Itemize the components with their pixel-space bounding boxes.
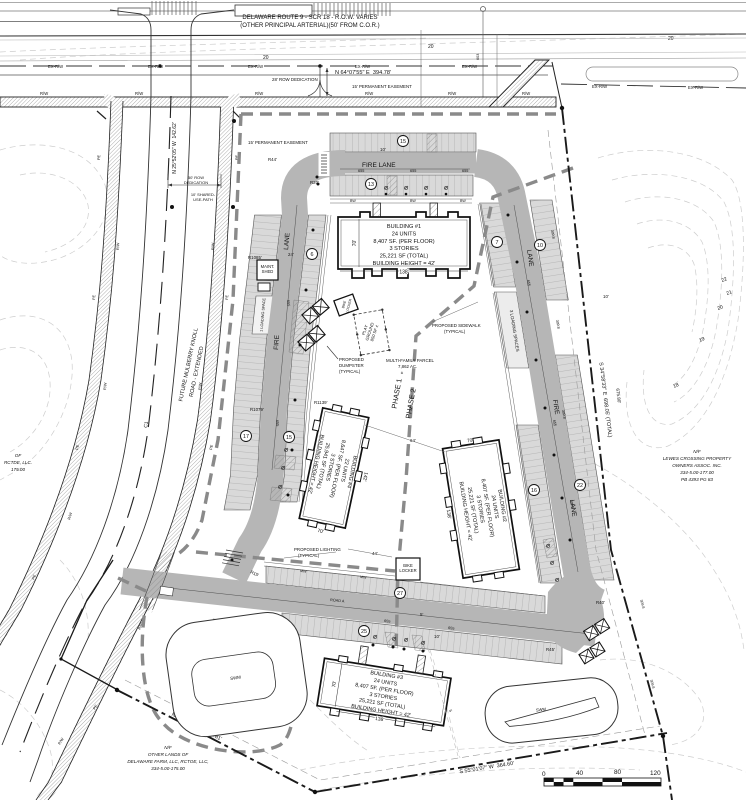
svg-text:8,407 SF. (PER FLOOR): 8,407 SF. (PER FLOOR) [373, 239, 434, 245]
svg-text:R/W: R/W [255, 91, 263, 96]
svg-text:BW: BW [410, 199, 416, 203]
svg-text:R1085': R1085' [248, 255, 262, 260]
svg-text:DEDICATION: DEDICATION [184, 180, 208, 185]
svg-text:MULTI-FAMILY PARCEL: MULTI-FAMILY PARCEL [386, 358, 435, 363]
svg-text:24 UNITS: 24 UNITS [392, 231, 417, 237]
svg-text:R/W: R/W [40, 91, 48, 96]
svg-text:655: 655 [275, 420, 279, 427]
svg-text:LOCKER: LOCKER [399, 568, 416, 573]
svg-text:PROPOSED: PROPOSED [339, 357, 364, 362]
svg-text:655: 655 [358, 169, 364, 173]
svg-text:5': 5' [420, 612, 423, 617]
svg-text:10': 10' [603, 294, 609, 299]
svg-text:R/W: R/W [448, 91, 456, 96]
svg-text:PE: PE [225, 294, 229, 300]
svg-text:N 64°07'55" E 394.78': N 64°07'55" E 394.78' [335, 70, 391, 76]
svg-text:R/W: R/W [522, 91, 530, 96]
svg-text:120: 120 [650, 770, 661, 777]
svg-text:3 STORIES: 3 STORIES [389, 246, 418, 252]
svg-text:22: 22 [577, 483, 583, 489]
svg-text:PHASE 1: PHASE 1 [389, 378, 403, 409]
svg-text:25: 25 [361, 629, 367, 635]
svg-text:138': 138' [375, 716, 385, 723]
svg-text:PROPOSED LIGHTING: PROPOSED LIGHTING [294, 547, 341, 552]
svg-text:15: 15 [286, 435, 292, 441]
svg-text:R/W: R/W [116, 242, 120, 250]
svg-text:603: 603 [476, 54, 480, 60]
svg-text:DELAWARE ROUTE 9 - SCR 18 - R.: DELAWARE ROUTE 9 - SCR 18 - R.O.W. VARIE… [242, 15, 377, 21]
svg-text:N 25°52'05" W 142.62': N 25°52'05" W 142.62' [172, 122, 178, 174]
svg-text:S 34°58'33" E 698.05' (TOTAL): S 34°58'33" E 698.05' (TOTAL) [597, 362, 612, 438]
svg-text:27: 27 [397, 591, 403, 597]
svg-text:20: 20 [428, 44, 434, 50]
svg-text:±: ± [401, 370, 404, 375]
svg-text:R40': R40' [596, 600, 605, 605]
svg-text:SHED: SHED [262, 269, 274, 274]
svg-text:RCTDE, LLC.: RCTDE, LLC. [4, 460, 32, 465]
svg-text:FIRE: FIRE [273, 334, 281, 350]
svg-text:R/W: R/W [57, 737, 65, 746]
svg-text:10': 10' [380, 147, 386, 152]
svg-text:0: 0 [542, 771, 546, 778]
svg-text:OWNERS ASSOC. INC.: OWNERS ASSOC. INC. [672, 463, 722, 468]
svg-text:R1079': R1079' [250, 407, 264, 412]
svg-text:25,221 SF (TOTAL): 25,221 SF (TOTAL) [380, 254, 429, 260]
svg-text:MW: MW [300, 569, 307, 574]
svg-text:PE: PE [92, 294, 96, 300]
svg-text:PHASE 2: PHASE 2 [403, 388, 417, 419]
svg-text:80: 80 [614, 769, 622, 776]
svg-text:BW: BW [350, 199, 356, 203]
svg-text:R/W: R/W [135, 91, 143, 96]
svg-text:138': 138' [399, 270, 408, 276]
svg-text:OTHER LANDS OF: OTHER LANDS OF [148, 752, 190, 757]
svg-text:309.8: 309.8 [555, 319, 561, 329]
svg-text:20: 20 [717, 304, 724, 312]
svg-text:16: 16 [531, 488, 537, 494]
svg-text:BW: BW [460, 199, 466, 203]
svg-text:22: 22 [721, 276, 728, 284]
svg-text:BUILDING HEIGHT = 42': BUILDING HEIGHT = 42' [373, 261, 436, 267]
svg-text:R44': R44' [268, 157, 277, 162]
svg-text:USE-PATH: USE-PATH [193, 197, 213, 202]
svg-text:675.80': 675.80' [615, 388, 622, 404]
svg-text:655: 655 [384, 619, 391, 624]
svg-text:10': 10' [434, 634, 440, 639]
svg-text:655: 655 [462, 169, 468, 173]
svg-text:24': 24' [288, 252, 294, 257]
svg-text:10: 10 [537, 243, 543, 249]
svg-text:MW: MW [360, 575, 367, 580]
svg-text:PROPOSED SIDEWALK: PROPOSED SIDEWALK [432, 323, 481, 328]
svg-text:17: 17 [243, 434, 249, 440]
svg-text:DUMPSTER: DUMPSTER [339, 363, 364, 368]
svg-text:R/W: R/W [67, 512, 73, 521]
svg-text:7: 7 [496, 240, 499, 246]
svg-text:N/F: N/F [693, 449, 702, 454]
svg-text:7,862 AC.: 7,862 AC. [398, 364, 417, 369]
svg-text:6: 6 [311, 252, 314, 258]
svg-text:PB 4393 PG 83: PB 4393 PG 83 [681, 477, 713, 482]
svg-text:18: 18 [672, 382, 680, 390]
svg-text:40: 40 [576, 770, 584, 777]
svg-text:R/W: R/W [103, 382, 108, 390]
svg-text:655: 655 [410, 169, 416, 173]
svg-text:334-5.00-175.00: 334-5.00-175.00 [151, 766, 185, 771]
svg-text:EX-R/W: EX-R/W [688, 85, 703, 90]
svg-text:EX-R/W: EX-R/W [592, 84, 607, 89]
svg-text:70': 70' [331, 680, 338, 687]
svg-text:70': 70' [352, 240, 358, 247]
svg-text:C1: C1 [143, 421, 150, 429]
svg-text:LEWES CROSSING PROPERTY: LEWES CROSSING PROPERTY [663, 456, 732, 461]
svg-text:EX-R/W: EX-R/W [48, 64, 63, 69]
svg-text:334-5.00-177.00: 334-5.00-177.00 [680, 470, 714, 475]
svg-text:R1139': R1139' [314, 400, 328, 405]
svg-text:13: 13 [368, 182, 374, 188]
svg-text:28' ROW DEDICATION: 28' ROW DEDICATION [272, 77, 318, 82]
svg-text:70': 70' [317, 528, 325, 535]
svg-text:EX-R/W: EX-R/W [355, 64, 370, 69]
svg-text:R/W: R/W [198, 382, 203, 390]
svg-text:175.00: 175.00 [11, 467, 25, 472]
svg-text:PE: PE [97, 154, 101, 160]
svg-text:PE: PE [209, 444, 214, 450]
svg-text:R15': R15' [250, 569, 260, 577]
svg-text:19: 19 [698, 336, 706, 344]
svg-text:EX-R/W: EX-R/W [462, 64, 477, 69]
svg-text:BUILDING #1: BUILDING #1 [387, 224, 421, 230]
svg-text:(TYPICAL): (TYPICAL) [444, 329, 466, 334]
svg-text:138': 138' [445, 509, 452, 519]
svg-text:309.8: 309.8 [639, 599, 645, 609]
svg-text:R/W: R/W [365, 91, 373, 96]
svg-text:20: 20 [668, 36, 674, 42]
svg-text:655: 655 [286, 300, 291, 307]
svg-text:FIRE LANE: FIRE LANE [362, 162, 396, 169]
svg-text:15' PERMANENT EASEMENT: 15' PERMANENT EASEMENT [352, 84, 412, 89]
svg-text:15' PERMANENT EASEMENT: 15' PERMANENT EASEMENT [248, 140, 308, 145]
svg-text:(OTHER PRINCIPAL ARTERIAL)(50': (OTHER PRINCIPAL ARTERIAL)(50' FROM C.O.… [240, 23, 379, 29]
svg-text:70': 70' [467, 437, 474, 444]
svg-text:(TYPICAL): (TYPICAL) [339, 369, 361, 374]
svg-text:N/F: N/F [164, 745, 173, 750]
svg-text:655: 655 [448, 626, 455, 631]
svg-text:EX-R/W: EX-R/W [248, 64, 263, 69]
svg-text:R45': R45' [546, 647, 555, 652]
svg-text:15: 15 [400, 139, 406, 145]
svg-text:5: 5 [448, 709, 454, 713]
svg-text:OF: OF [15, 453, 23, 458]
svg-text:DELAWARE FARM, LLC, RCTOE, LLC: DELAWARE FARM, LLC, RCTOE, LLC, [127, 759, 208, 764]
svg-text:(TYPICAL): (TYPICAL) [298, 553, 320, 558]
svg-text:R/W: R/W [211, 242, 215, 250]
